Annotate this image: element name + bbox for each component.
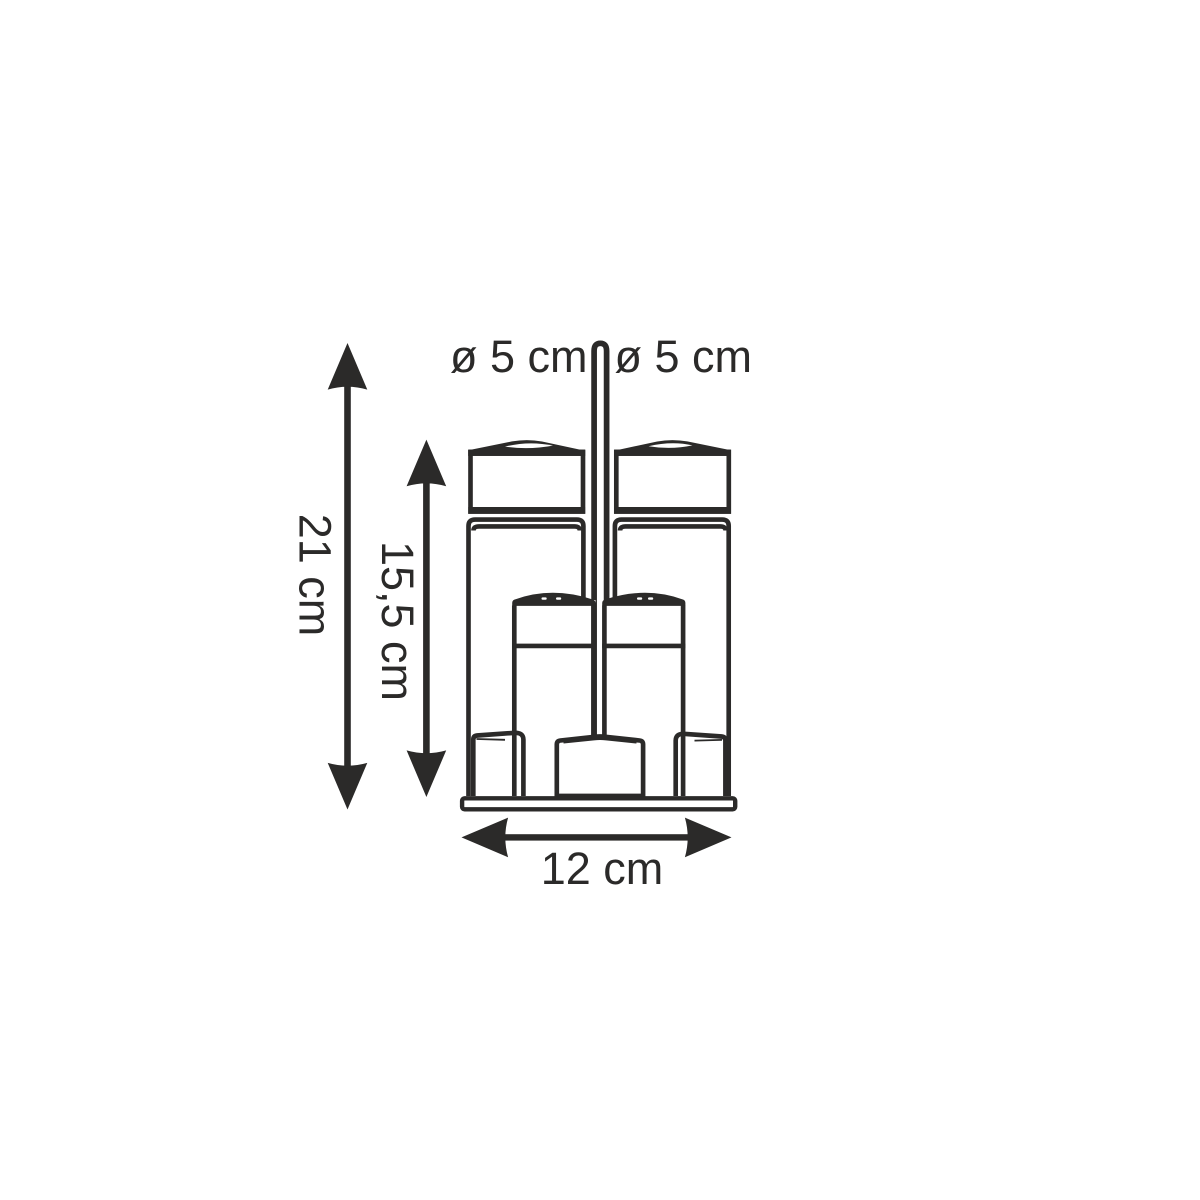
svg-text:15,5 cm: 15,5 cm — [372, 541, 423, 701]
svg-text:ø 5 cm: ø 5 cm — [450, 331, 588, 382]
svg-text:12 cm: 12 cm — [541, 843, 664, 894]
svg-text:21 cm: 21 cm — [290, 514, 341, 637]
svg-text:ø 5 cm: ø 5 cm — [615, 331, 753, 382]
